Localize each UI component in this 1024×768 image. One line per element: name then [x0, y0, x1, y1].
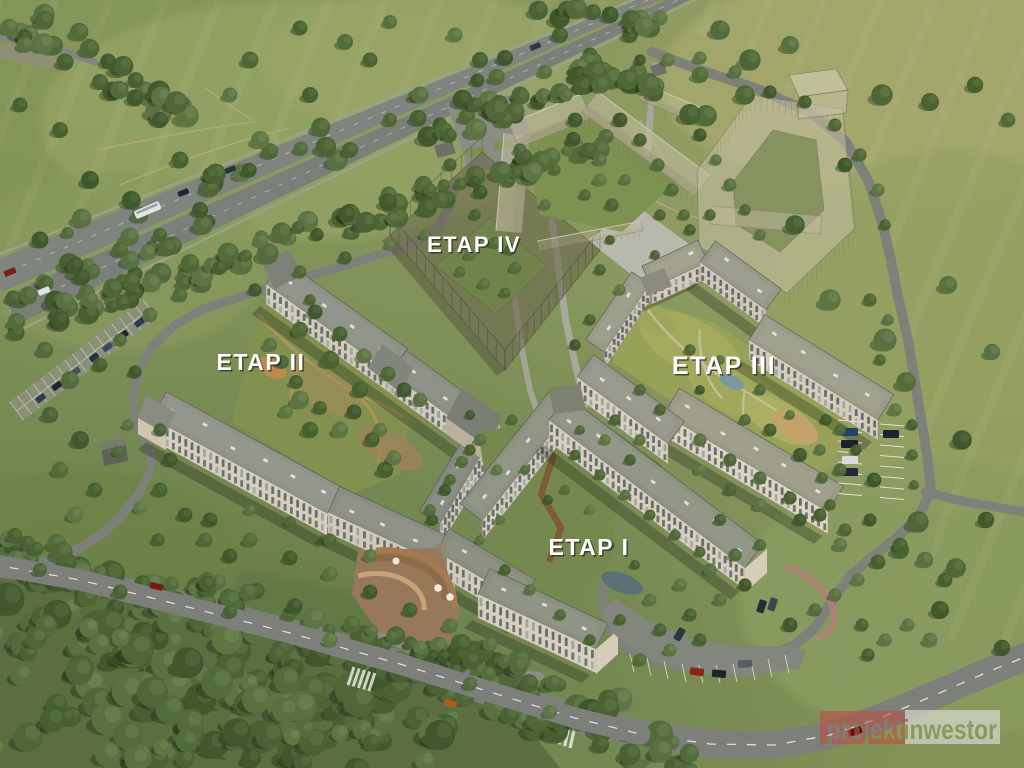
svg-text:ETAP II: ETAP II	[217, 349, 306, 375]
svg-text:ETAP III: ETAP III	[672, 352, 776, 380]
svg-text:ETAP I: ETAP I	[549, 534, 630, 560]
svg-text:ETAP IV: ETAP IV	[427, 232, 521, 257]
